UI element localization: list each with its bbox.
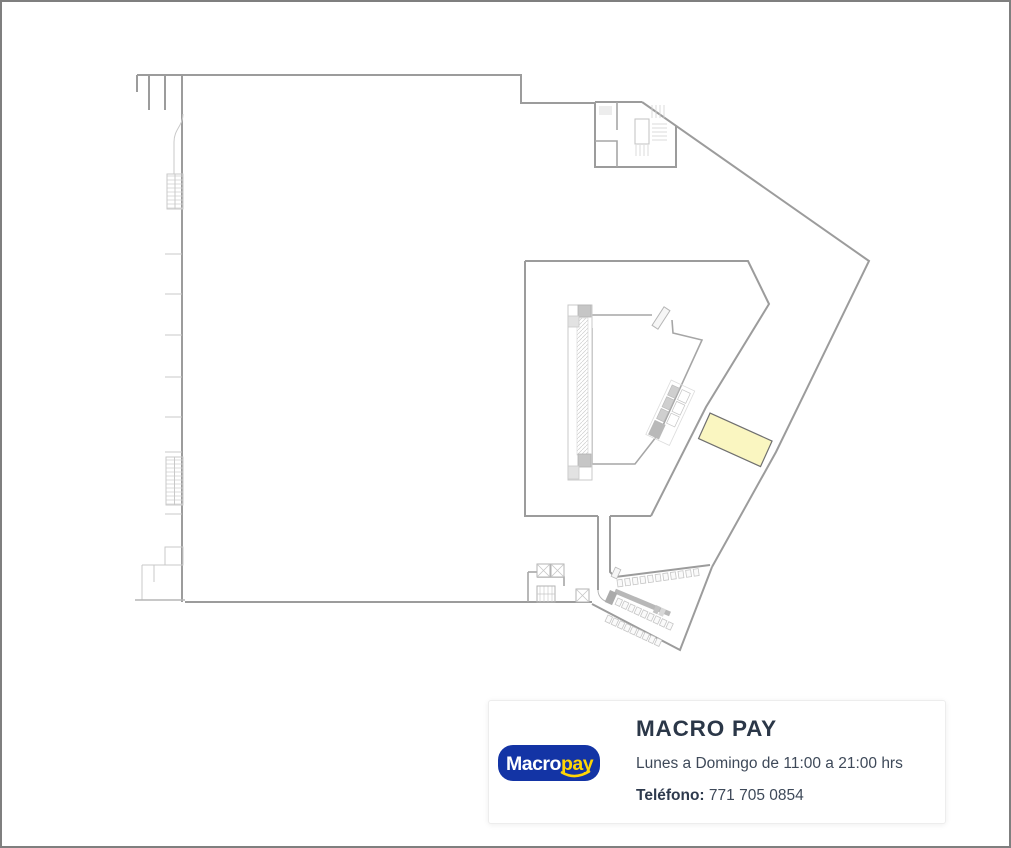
stairwell-room — [599, 105, 667, 156]
highlighted-store-unit[interactable] — [699, 413, 772, 467]
stall-row-bottom — [605, 615, 662, 646]
wall-details — [135, 114, 610, 602]
store-info-card: Macropay MACRO PAY Lunes a Domingo de 11… — [488, 700, 946, 824]
service-lobby — [537, 564, 589, 602]
store-title: MACRO PAY — [636, 716, 777, 742]
macropay-logo: Macropay — [498, 745, 600, 781]
phone-label: Teléfono: — [636, 787, 705, 804]
svg-text:Macropay: Macropay — [506, 753, 594, 775]
door-leaf — [652, 307, 670, 329]
outer-walls — [137, 75, 869, 650]
app-window: Macropay MACRO PAY Lunes a Domingo de 11… — [0, 0, 1011, 848]
elevator-bank — [646, 380, 695, 445]
store-phone: Teléfono: 771 705 0854 — [636, 787, 804, 805]
logo-text-primary: Macro — [506, 753, 562, 775]
phone-value: 771 705 0854 — [709, 787, 804, 804]
escalator — [568, 305, 592, 480]
store-schedule: Lunes a Domingo de 11:00 a 21:00 hrs — [636, 755, 903, 773]
courtyard-walls — [528, 102, 702, 602]
